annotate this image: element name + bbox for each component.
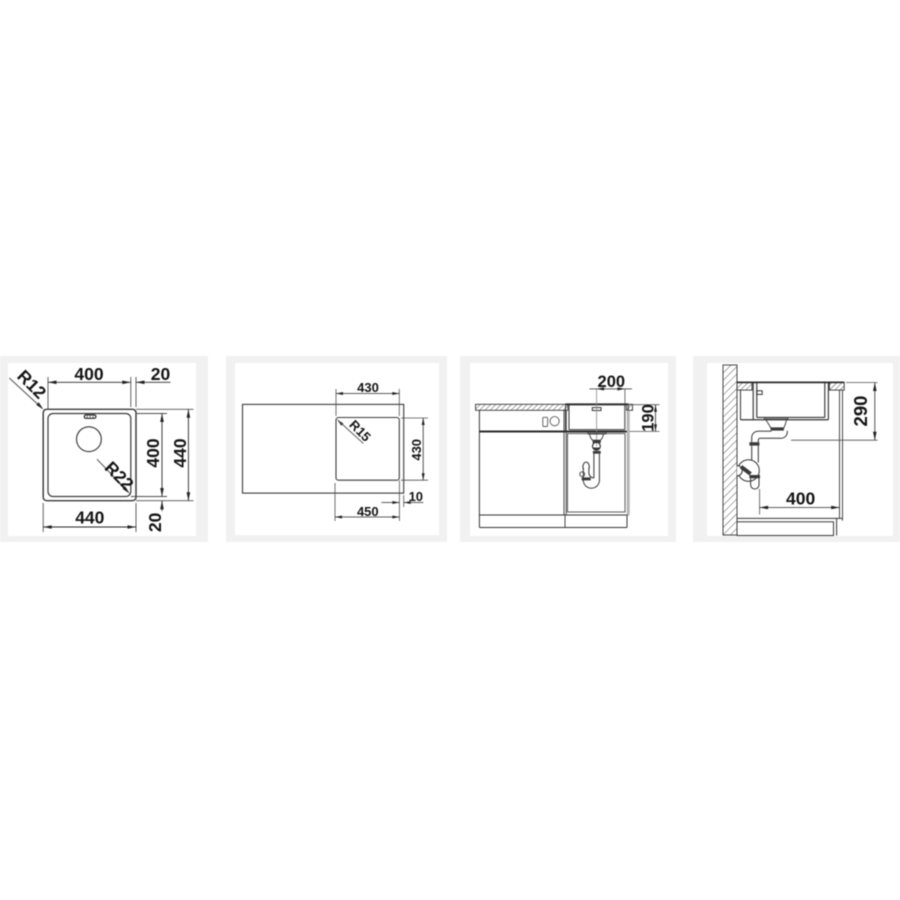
svg-text:10: 10 xyxy=(409,489,423,504)
svg-text:20: 20 xyxy=(151,364,171,384)
svg-text:440: 440 xyxy=(170,438,190,467)
svg-text:400: 400 xyxy=(143,438,163,467)
svg-text:400: 400 xyxy=(786,489,815,509)
svg-text:440: 440 xyxy=(75,508,104,528)
svg-text:430: 430 xyxy=(409,439,424,461)
svg-text:190: 190 xyxy=(640,404,658,432)
svg-text:450: 450 xyxy=(357,504,379,519)
svg-text:290: 290 xyxy=(850,396,871,427)
svg-text:20: 20 xyxy=(145,512,165,532)
svg-text:400: 400 xyxy=(74,364,103,384)
svg-text:430: 430 xyxy=(357,380,379,395)
svg-text:200: 200 xyxy=(598,373,626,391)
